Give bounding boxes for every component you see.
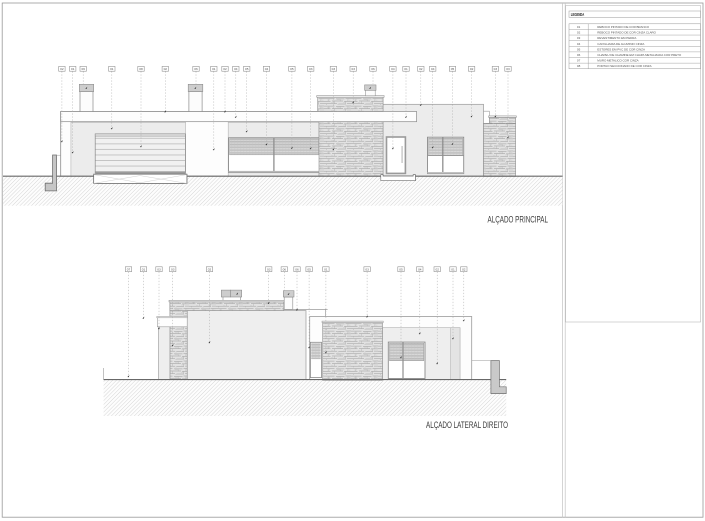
svg-text:05: 05 (290, 67, 294, 71)
svg-text:01: 01 (324, 267, 328, 271)
svg-text:05: 05 (451, 67, 455, 71)
svg-text:PORTAO SECCIONADO DE COR CINZA: PORTAO SECCIONADO DE COR CINZA (597, 64, 651, 68)
svg-text:04: 04 (577, 42, 581, 46)
svg-text:06: 06 (295, 267, 299, 271)
svg-text:CAIXILHARIA DE ALUMINIO CINZA: CAIXILHARIA DE ALUMINIO CINZA (597, 42, 644, 46)
svg-text:03: 03 (267, 267, 271, 271)
svg-text:REBOCO PINTADO DE COR CINZA CL: REBOCO PINTADO DE COR CINZA CLARO (597, 31, 656, 35)
svg-text:08: 08 (139, 67, 143, 71)
svg-text:02: 02 (419, 67, 423, 71)
svg-text:04: 04 (234, 67, 238, 71)
svg-text:06: 06 (283, 267, 287, 271)
svg-text:REBOCO PINTADO DE COR BRANCO: REBOCO PINTADO DE COR BRANCO (597, 25, 649, 29)
svg-text:03: 03 (171, 267, 175, 271)
svg-text:01: 01 (142, 267, 146, 271)
svg-text:01: 01 (212, 67, 216, 71)
svg-text:03: 03 (351, 67, 355, 71)
svg-text:02: 02 (462, 267, 466, 271)
svg-text:01: 01 (577, 25, 581, 29)
svg-text:01: 01 (110, 67, 114, 71)
svg-text:03: 03 (309, 67, 313, 71)
svg-text:03: 03 (506, 67, 510, 71)
svg-text:MURO METALICO COR CINZA: MURO METALICO COR CINZA (597, 59, 638, 63)
svg-text:03: 03 (365, 267, 369, 271)
svg-text:02: 02 (435, 267, 439, 271)
svg-text:07: 07 (577, 59, 581, 63)
svg-text:02: 02 (577, 31, 581, 35)
svg-text:01: 01 (404, 67, 408, 71)
svg-text:ALÇADO LATERAL DIREITO: ALÇADO LATERAL DIREITO (426, 420, 508, 430)
svg-text:REVESTIMENTO EM PEDRA: REVESTIMENTO EM PEDRA (597, 36, 636, 40)
svg-text:02: 02 (470, 67, 474, 71)
svg-text:07: 07 (127, 267, 131, 271)
svg-text:04: 04 (431, 67, 435, 71)
svg-text:06: 06 (81, 67, 85, 71)
svg-text:04: 04 (265, 67, 269, 71)
svg-text:04: 04 (418, 267, 422, 271)
svg-text:06: 06 (194, 67, 198, 71)
svg-text:02: 02 (223, 67, 227, 71)
svg-text:02: 02 (164, 67, 168, 71)
svg-text:04: 04 (391, 67, 395, 71)
svg-text:05: 05 (245, 67, 249, 71)
svg-text:02: 02 (60, 67, 64, 71)
svg-text:01: 01 (451, 267, 455, 271)
svg-text:05: 05 (307, 267, 311, 271)
svg-text:CHAPEU DE CHAMINE EM CHAPA MET: CHAPEU DE CHAMINE EM CHAPA METALIZADA CO… (597, 53, 682, 57)
svg-text:03: 03 (577, 36, 581, 40)
svg-text:06: 06 (371, 67, 375, 71)
svg-text:01: 01 (71, 67, 75, 71)
svg-text:05: 05 (577, 47, 581, 51)
svg-text:03: 03 (157, 267, 161, 271)
svg-text:06: 06 (577, 53, 581, 57)
svg-text:05: 05 (399, 267, 403, 271)
svg-text:02: 02 (208, 267, 212, 271)
svg-text:08: 08 (577, 64, 581, 68)
svg-text:03: 03 (332, 67, 336, 71)
svg-text:ESTORES EM PVC DE COR CINZA: ESTORES EM PVC DE COR CINZA (597, 47, 645, 51)
svg-text:LEGENDA: LEGENDA (571, 12, 585, 17)
svg-text:03: 03 (494, 67, 498, 71)
svg-text:ALÇADO PRINCIPAL: ALÇADO PRINCIPAL (488, 215, 549, 225)
